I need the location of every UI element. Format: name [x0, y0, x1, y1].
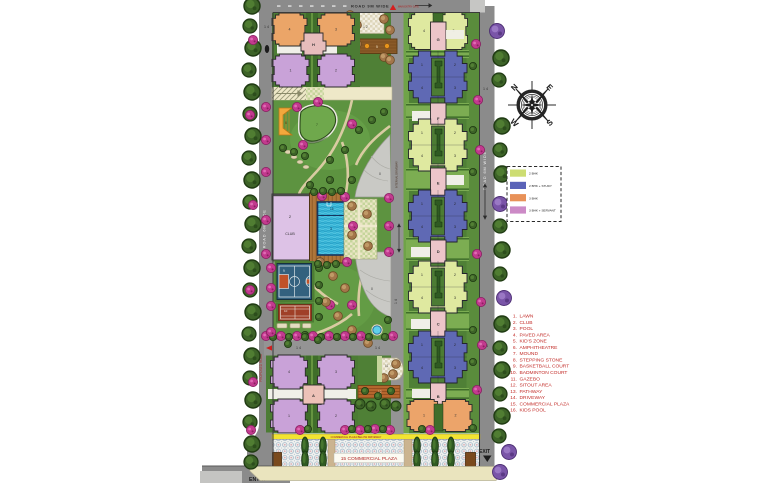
svg-text:G: G [437, 37, 440, 42]
svg-text:COMMERCIAL PLAZA: COMMERCIAL PLAZA [520, 401, 571, 407]
svg-text:4: 4 [423, 29, 425, 33]
svg-text:POOL: POOL [520, 326, 534, 332]
svg-text:PATHWAY: PATHWAY [520, 389, 544, 395]
svg-text:2: 2 [335, 69, 337, 73]
svg-text:16.: 16. [510, 408, 517, 414]
svg-text:2 BHK + STUDY: 2 BHK + STUDY [529, 184, 552, 188]
svg-text:3: 3 [454, 296, 456, 300]
svg-text:MAIN ENTRY GATE: MAIN ENTRY GATE [398, 6, 419, 9]
svg-text:KIDS POOL: KIDS POOL [520, 408, 547, 414]
svg-text:12.: 12. [510, 383, 517, 389]
svg-text:3 BHK + SERVANT: 3 BHK + SERVANT [529, 209, 556, 213]
svg-text:CLUB: CLUB [520, 320, 533, 326]
svg-text:COMMERCIAL PLAZA BELOW DRIVEWA: COMMERCIAL PLAZA BELOW DRIVEWAY [331, 435, 382, 439]
svg-text:8.: 8. [513, 358, 517, 364]
svg-text:BADMINTON COURT: BADMINTON COURT [520, 370, 568, 376]
svg-text:1: 1 [290, 69, 292, 73]
svg-text:PAVED AREA: PAVED AREA [520, 332, 551, 338]
svg-text:4: 4 [421, 225, 423, 229]
svg-text:LAWN: LAWN [520, 314, 534, 320]
svg-text:3: 3 [454, 154, 456, 158]
svg-text:4: 4 [421, 366, 423, 370]
svg-text:2: 2 [454, 131, 456, 135]
svg-text:15 COMMERCIAL PLAZA: 15 COMMERCIAL PLAZA [341, 456, 398, 462]
svg-text:1: 1 [288, 414, 290, 418]
svg-text:1: 1 [421, 131, 423, 135]
svg-text:1: 1 [421, 63, 423, 67]
svg-text:4: 4 [288, 370, 290, 374]
svg-text:1.: 1. [513, 314, 517, 320]
svg-text:3 BHK: 3 BHK [529, 196, 539, 200]
svg-text:KID'S ZONE: KID'S ZONE [520, 339, 548, 345]
svg-text:3: 3 [454, 366, 456, 370]
svg-text:2: 2 [454, 202, 456, 206]
svg-text:15.: 15. [510, 401, 517, 407]
svg-text:STEPPING STONE: STEPPING STONE [520, 358, 564, 364]
svg-text:1: 1 [421, 273, 423, 277]
svg-text:4: 4 [289, 28, 291, 32]
svg-text:3: 3 [454, 225, 456, 229]
svg-text:3: 3 [335, 370, 337, 374]
svg-text:8: 8 [379, 172, 381, 176]
svg-text:AMPHITHEATRE: AMPHITHEATRE [520, 345, 559, 351]
svg-text:10.: 10. [510, 370, 517, 376]
svg-text:9.: 9. [513, 364, 517, 370]
svg-text:3.: 3. [513, 326, 517, 332]
svg-text:1: 1 [421, 343, 423, 347]
svg-text:2 BHK: 2 BHK [529, 172, 539, 176]
svg-text:13.: 13. [510, 389, 517, 395]
svg-text:2: 2 [455, 414, 457, 418]
svg-text:B: B [437, 394, 440, 399]
svg-text:ROAD 6M WIDE: ROAD 6M WIDE [263, 209, 267, 248]
svg-text:3: 3 [335, 28, 337, 32]
svg-text:2: 2 [335, 414, 337, 418]
svg-text:CLUB: CLUB [285, 232, 295, 236]
svg-text:6.: 6. [513, 345, 517, 351]
svg-text:A: A [312, 393, 315, 398]
svg-text:11: 11 [385, 364, 389, 368]
svg-text:11.: 11. [511, 376, 517, 382]
svg-text:9: 9 [283, 269, 285, 273]
svg-text:7.: 7. [513, 351, 517, 357]
svg-text:2: 2 [454, 63, 456, 67]
svg-text:4: 4 [421, 154, 423, 158]
svg-text:16: 16 [330, 207, 334, 211]
svg-text:2: 2 [454, 273, 456, 277]
svg-text:1 4: 1 4 [264, 25, 269, 29]
svg-text:6: 6 [285, 121, 287, 125]
svg-text:1 4: 1 4 [483, 87, 488, 91]
svg-text:4.: 4. [513, 332, 517, 338]
svg-text:C: C [437, 322, 440, 327]
svg-text:1 4: 1 4 [394, 299, 398, 304]
svg-text:4: 4 [421, 86, 423, 90]
svg-text:2: 2 [454, 343, 456, 347]
svg-text:1: 1 [421, 202, 423, 206]
svg-text:SITOUT AREA: SITOUT AREA [520, 383, 553, 389]
svg-text:ROAD 9M WIDE: ROAD 9M WIDE [351, 3, 389, 8]
svg-text:INTERNAL DRIVEWAY: INTERNAL DRIVEWAY [395, 161, 399, 188]
svg-text:5: 5 [376, 45, 378, 49]
svg-text:2.: 2. [513, 320, 517, 326]
svg-text:1: 1 [423, 414, 425, 418]
svg-text:5.: 5. [513, 339, 517, 345]
svg-text:H: H [312, 42, 315, 47]
svg-text:DRIVEWAY: DRIVEWAY [520, 395, 546, 401]
svg-text:MOUND: MOUND [520, 351, 539, 357]
svg-text:8: 8 [371, 287, 373, 291]
svg-text:3: 3 [330, 227, 332, 231]
svg-text:E: E [437, 181, 440, 186]
svg-text:4: 4 [421, 296, 423, 300]
svg-text:10: 10 [284, 309, 288, 313]
svg-text:1 4: 1 4 [375, 346, 380, 350]
svg-text:EXIT: EXIT [479, 449, 490, 455]
svg-text:7: 7 [316, 123, 318, 127]
svg-text:D: D [437, 249, 440, 254]
svg-text:1 2: 1 2 [363, 25, 368, 29]
svg-text:14.: 14. [510, 395, 517, 401]
svg-text:1 4: 1 4 [296, 346, 301, 350]
svg-text:3: 3 [454, 86, 456, 90]
svg-text:BASKETBALL COURT: BASKETBALL COURT [520, 364, 570, 370]
svg-text:GAZEBO: GAZEBO [520, 376, 541, 382]
